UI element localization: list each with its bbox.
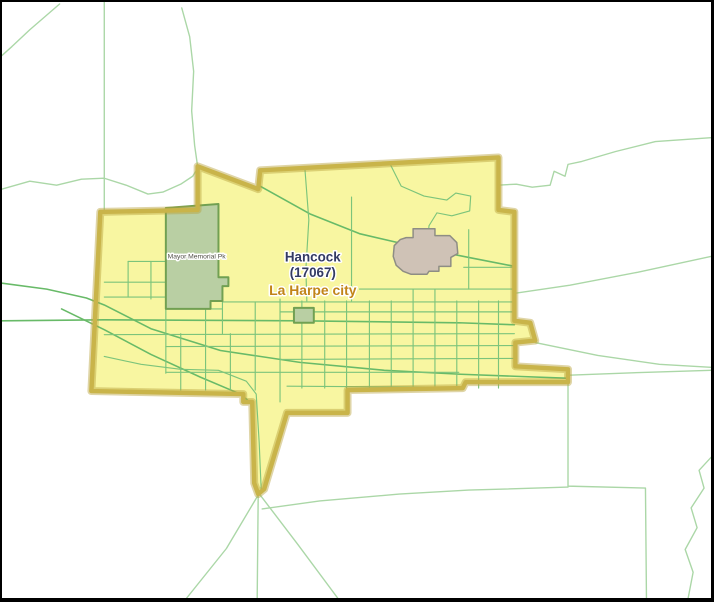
rural-road <box>262 487 568 509</box>
place-label-hancock-code: (17067) <box>290 265 336 280</box>
rural-road <box>498 138 711 188</box>
rural-road <box>568 383 646 598</box>
rural-road <box>187 495 258 598</box>
place-label-hancock: Hancock <box>285 249 341 264</box>
small-park <box>294 308 314 323</box>
rural-road <box>2 168 198 194</box>
park-label-mayor-memorial: Mayor Memorial Pk <box>168 253 227 260</box>
rural-road <box>182 8 198 166</box>
map-canvas[interactable]: Hancock(17067)La Harpe cityMayor Memoria… <box>2 2 711 598</box>
rural-road <box>260 495 337 598</box>
rural-road <box>2 4 60 55</box>
rural-road <box>257 495 258 598</box>
map-window: Hancock(17067)La Harpe cityMayor Memoria… <box>0 0 714 602</box>
rural-road <box>685 457 711 598</box>
rural-road <box>516 256 711 293</box>
place-label-laharpe: La Harpe city <box>269 282 357 298</box>
rural-road <box>569 370 711 375</box>
rural-road <box>535 343 711 368</box>
